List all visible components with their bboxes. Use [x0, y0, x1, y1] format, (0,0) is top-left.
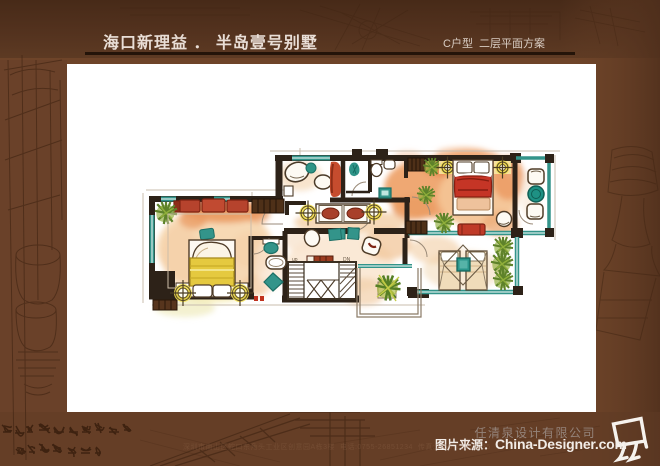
svg-text:up: up: [292, 257, 298, 263]
svg-text:DN: DN: [343, 257, 351, 263]
